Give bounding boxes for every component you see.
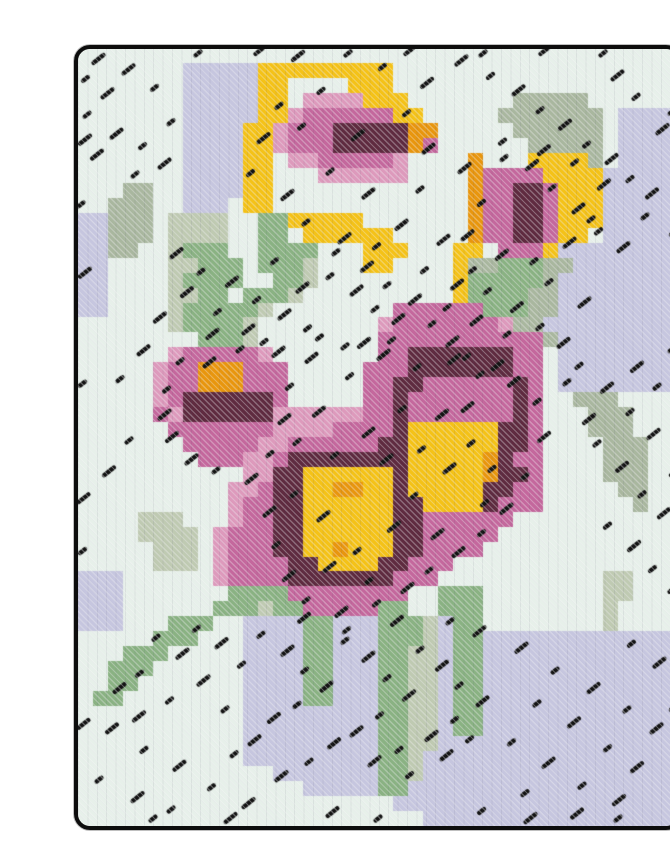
needlepoint-artwork [74, 45, 670, 830]
stitch-canvas [78, 49, 670, 826]
